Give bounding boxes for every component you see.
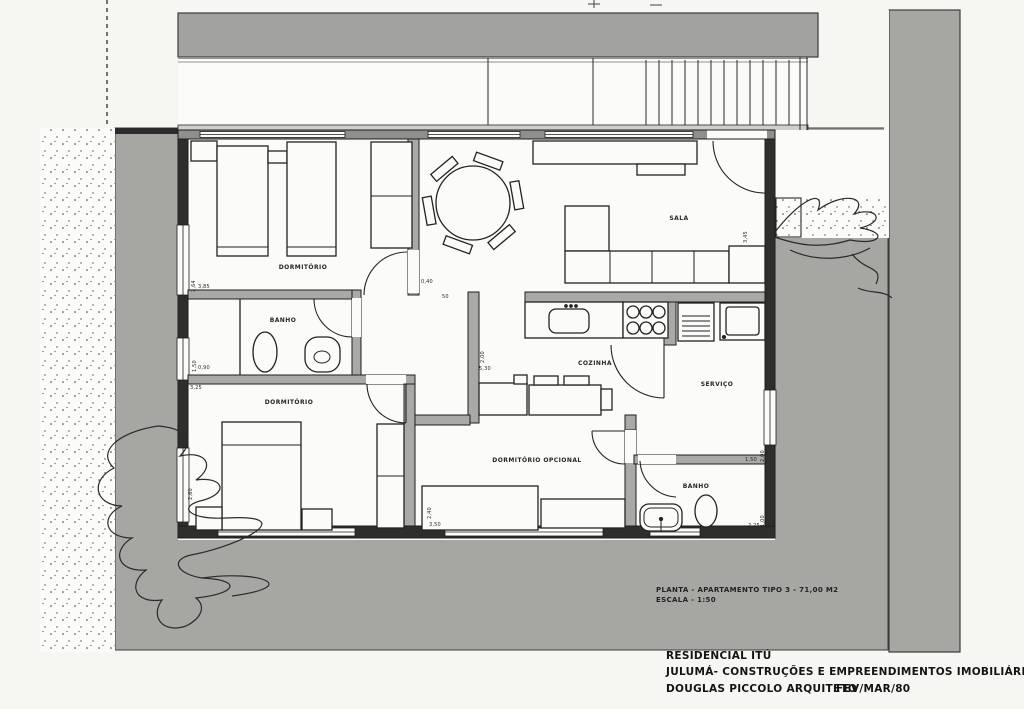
dim-optional-width: 3,50 xyxy=(429,522,441,528)
dim-living-width: 3,45 xyxy=(743,231,749,243)
room-label-living: SALA xyxy=(669,215,688,222)
dim-bath1-width: 0,90 xyxy=(198,365,210,371)
dim-service-width: 1,50 xyxy=(745,457,757,463)
dim-bedroom1-depth: 2,64 xyxy=(191,280,197,292)
room-label-bath1: BANHO xyxy=(270,317,297,324)
room-label-bedroom1: DORMITÓRIO xyxy=(279,264,328,271)
dim-bedroom2-width: 3,25 xyxy=(190,385,202,391)
service-furniture xyxy=(678,303,765,341)
dim-bedroom2-depth: 2,60 xyxy=(188,488,194,500)
title-date: FEV/MAR/80 xyxy=(836,683,910,695)
blueprint-page: DORMITÓRIO BANHO DORMITÓRIO SALA COZINHA… xyxy=(0,0,1024,709)
plan-caption-line1: PLANTA - APARTAMENTO TIPO 3 - 71,00 M2 xyxy=(656,586,838,594)
title-project: RESIDENCIAL ITÚ xyxy=(666,650,772,662)
dim-corridor-50: 50 xyxy=(442,294,449,300)
dim-bedroom1-width: 3,85 xyxy=(198,284,210,290)
dim-kitchen-length: 5,30 xyxy=(479,366,491,372)
room-label-optional-bedroom: DORMITÓRIO OPCIONAL xyxy=(492,457,581,464)
dim-wall-040: 0,40 xyxy=(421,279,433,285)
floor-plan-drawing xyxy=(0,0,1024,709)
facade-band xyxy=(178,57,808,133)
entry-hall xyxy=(775,130,888,238)
title-company: JULUMÁ- CONSTRUÇÕES E EMPREENDIMENTOS IM… xyxy=(666,666,1024,678)
dim-service-depth: 2,00 xyxy=(760,450,766,462)
room-label-bath2: BANHO xyxy=(683,483,710,490)
room-label-kitchen: COZINHA xyxy=(578,360,612,367)
room-label-bedroom2: DORMITÓRIO xyxy=(265,399,314,406)
garden-strip xyxy=(40,128,115,652)
title-architect: DOUGLAS PICCOLO ARQUITETO xyxy=(666,683,857,695)
dim-kitchen-depth: 2,00 xyxy=(480,351,486,363)
plan-caption-line2: ESCALA - 1:50 xyxy=(656,596,716,604)
bedroom1-furniture xyxy=(191,141,412,256)
room-label-service: SERVIÇO xyxy=(701,381,734,388)
dim-bath2-depth: 1,00 xyxy=(760,515,766,527)
dim-optional-depth: 2,40 xyxy=(427,507,433,519)
dim-bath2-width: 2,25 xyxy=(748,523,760,529)
